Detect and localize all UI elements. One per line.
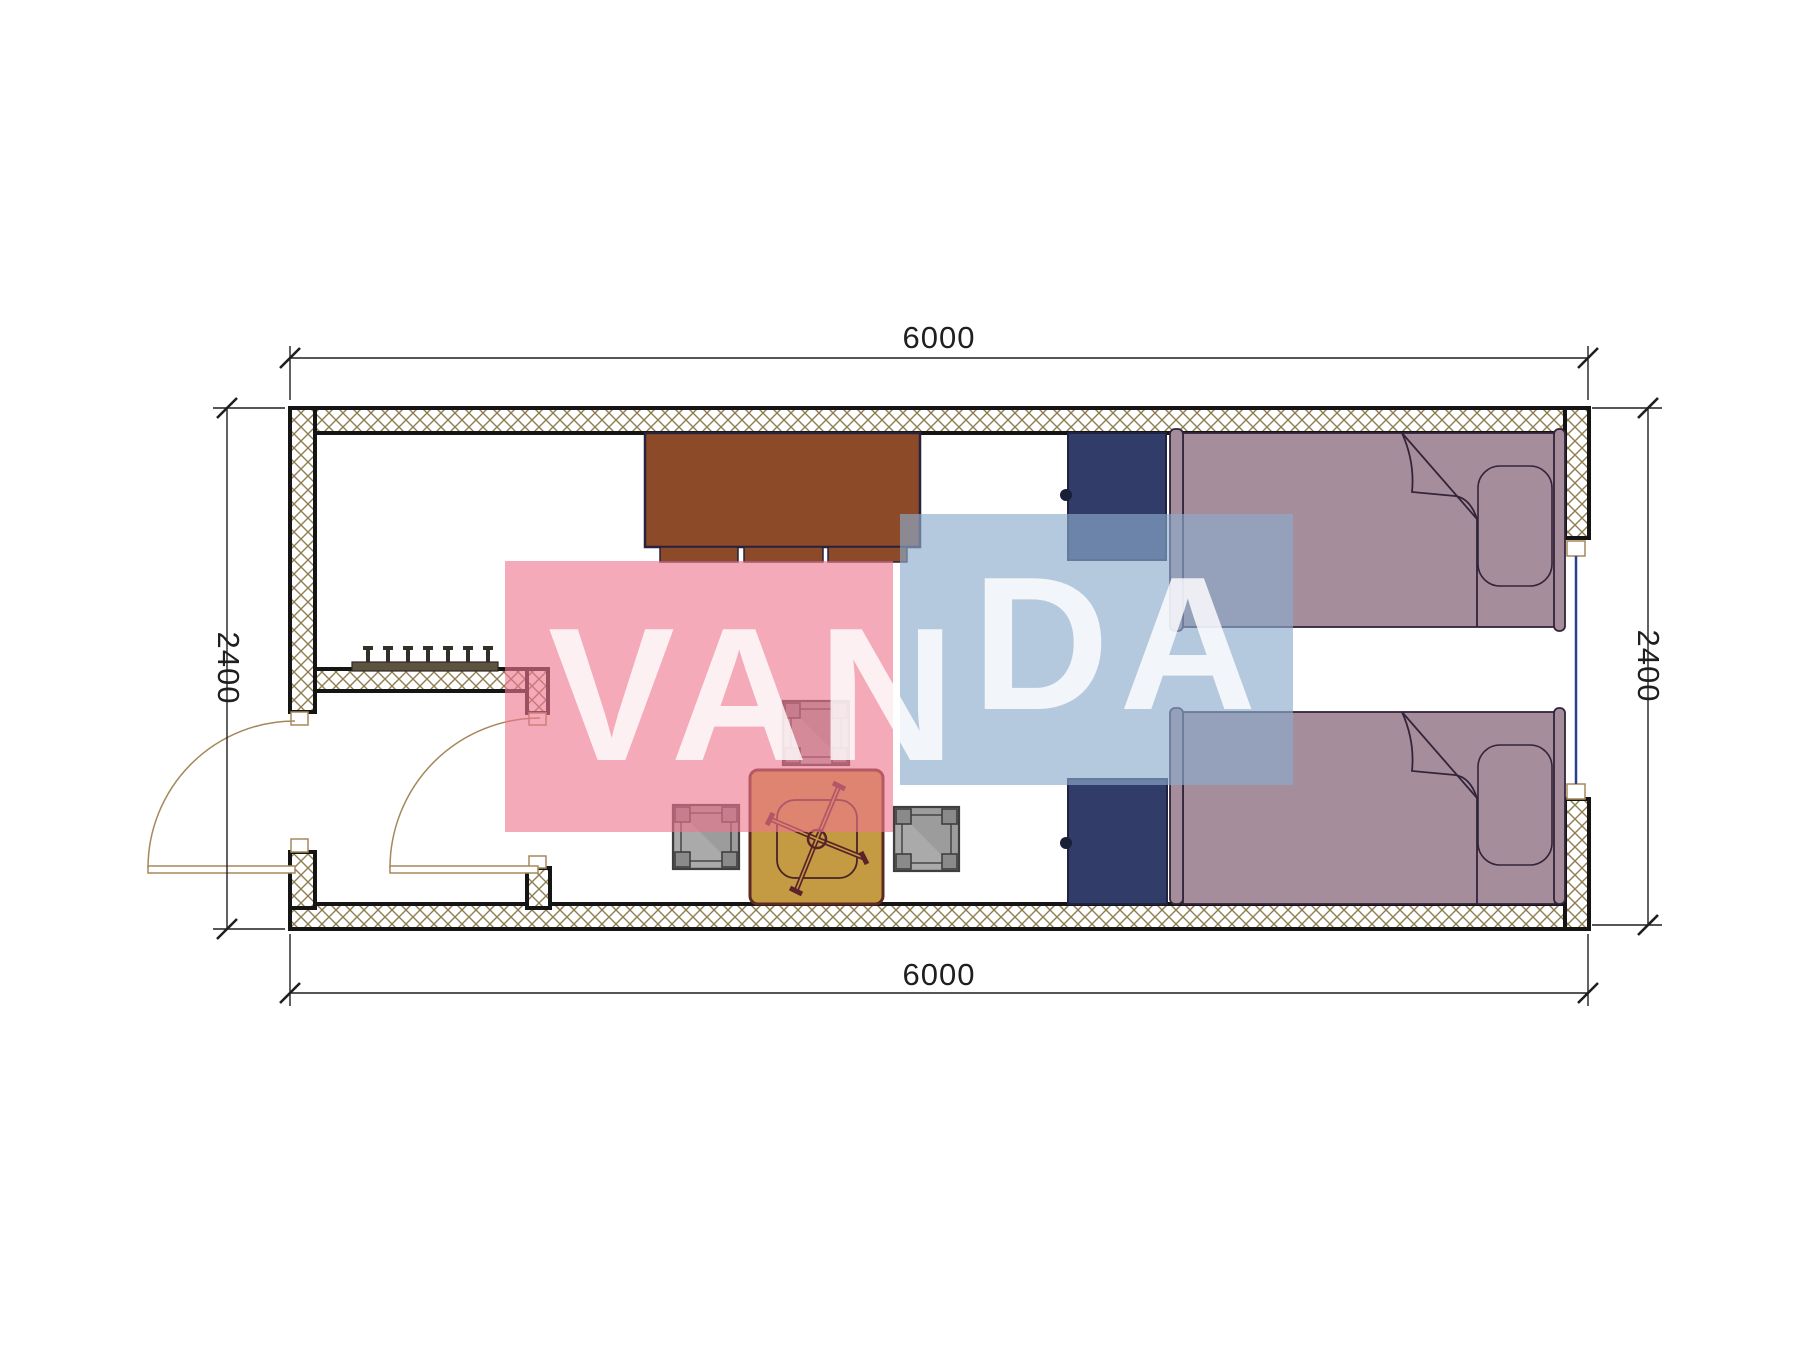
window-frame-bottom xyxy=(1567,784,1585,799)
partition-band xyxy=(315,669,527,691)
door-jamb xyxy=(291,839,308,852)
pillow xyxy=(1478,466,1552,586)
headboard xyxy=(1554,429,1565,631)
cabinet-foot xyxy=(660,547,738,562)
watermark-text-van: VAN xyxy=(548,600,965,790)
dimension-label-bottom: 6000 xyxy=(903,957,976,992)
dimension-label-top: 6000 xyxy=(903,320,976,355)
window-frame-top xyxy=(1567,541,1585,556)
door-jamb xyxy=(291,712,308,725)
watermark-text-da: DA xyxy=(972,549,1266,739)
wall-right-lower xyxy=(1565,799,1589,929)
entry-door-exterior xyxy=(148,712,308,873)
dimension-label-right: 2400 xyxy=(1631,630,1666,703)
window-right-wall xyxy=(1567,541,1585,799)
door-swing-arc xyxy=(148,721,295,868)
floor-plan-canvas: 6000 6000 2400 2400 VAN D xyxy=(0,0,1800,1350)
coat-rack-bar xyxy=(352,662,498,671)
nightstand-knob xyxy=(1060,489,1072,501)
dimension-right: 2400 xyxy=(1592,398,1666,935)
sideboard-cabinet xyxy=(645,433,920,562)
door-leaf xyxy=(390,866,538,873)
door-pilaster-hall xyxy=(527,868,550,908)
wall-right-upper xyxy=(1565,408,1589,538)
dimension-label-left: 2400 xyxy=(211,632,246,705)
dimension-top: 6000 xyxy=(280,320,1598,400)
cabinet-foot xyxy=(828,547,907,562)
wall-top xyxy=(290,408,1589,433)
stool-right xyxy=(894,807,959,871)
cabinet-body xyxy=(645,433,920,547)
nightstand-knob xyxy=(1060,837,1072,849)
wall-left xyxy=(290,408,315,712)
door-pilaster-left xyxy=(290,852,315,908)
door-leaf xyxy=(148,866,295,873)
headboard xyxy=(1554,708,1565,904)
dimension-bottom: 6000 xyxy=(280,934,1598,1006)
wall-bottom xyxy=(290,904,1589,929)
nightstand-bottom xyxy=(1060,779,1167,904)
cabinet-foot xyxy=(744,547,823,562)
coat-rack xyxy=(352,646,498,671)
pillow xyxy=(1478,745,1552,865)
dimension-left: 2400 xyxy=(211,398,285,939)
coat-hooks xyxy=(363,646,493,662)
